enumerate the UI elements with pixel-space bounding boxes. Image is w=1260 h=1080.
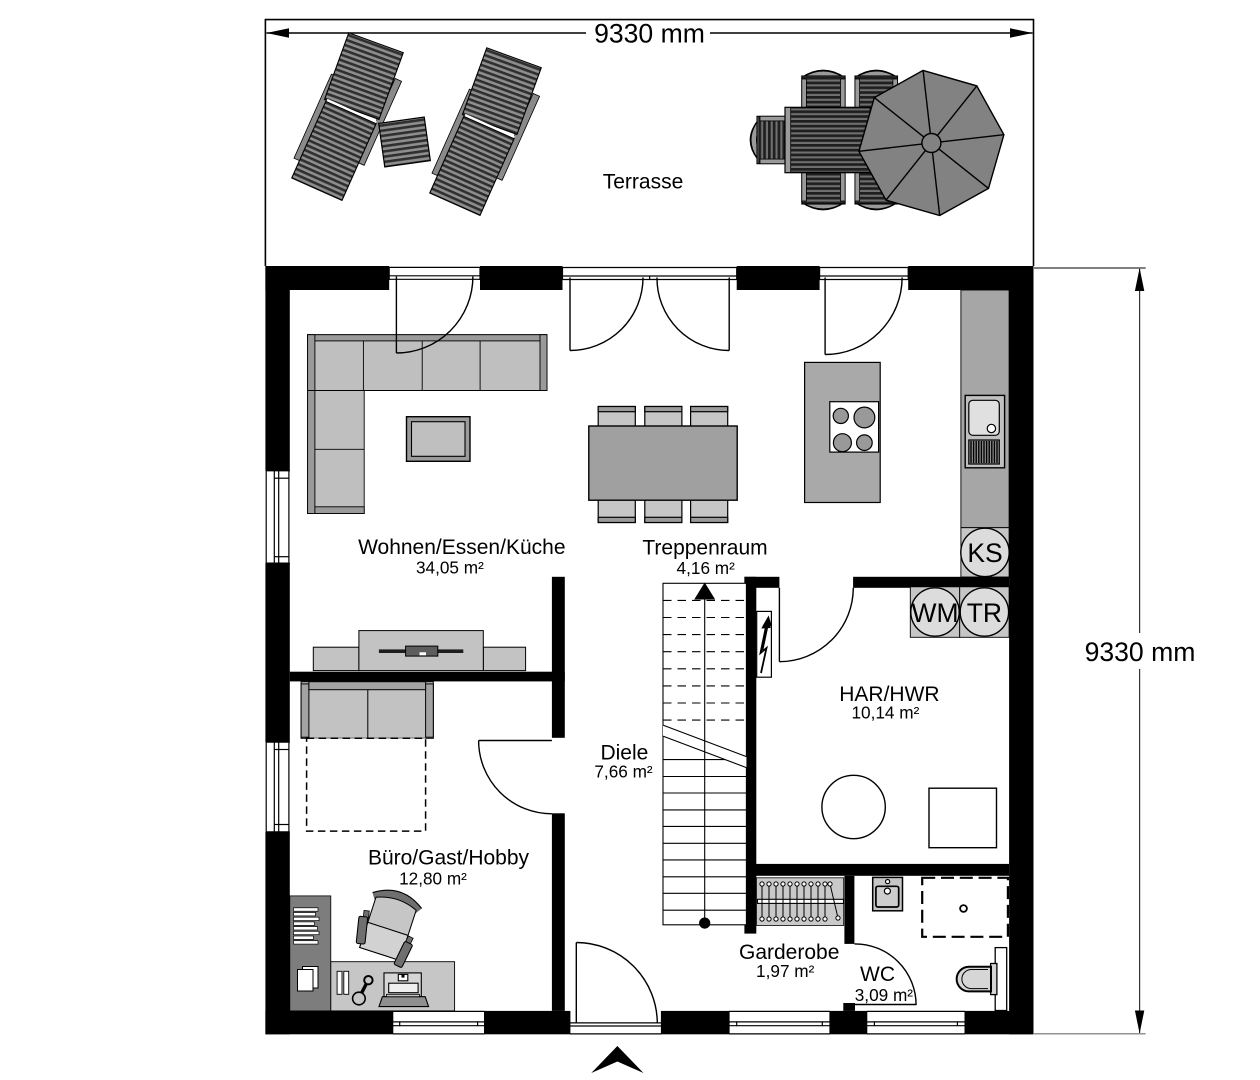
svg-text:1,97 m²: 1,97 m² (756, 961, 815, 981)
svg-text:34,05 m²: 34,05 m² (416, 558, 484, 578)
svg-text:WM: WM (911, 598, 958, 628)
svg-text:4,16 m²: 4,16 m² (677, 558, 736, 578)
svg-text:10,14 m²: 10,14 m² (851, 703, 919, 723)
svg-text:Wohnen/Essen/Küche: Wohnen/Essen/Küche (358, 536, 565, 559)
svg-text:9330 mm: 9330 mm (1085, 637, 1196, 667)
svg-text:Büro/Gast/Hobby: Büro/Gast/Hobby (368, 846, 530, 869)
svg-text:WC: WC (860, 963, 895, 986)
svg-text:3,09 m²: 3,09 m² (855, 985, 914, 1005)
svg-text:TR: TR (967, 598, 1002, 628)
svg-text:7,66 m²: 7,66 m² (594, 761, 653, 781)
svg-text:9330 mm: 9330 mm (594, 18, 705, 48)
svg-text:12,80 m²: 12,80 m² (399, 868, 467, 888)
svg-text:Treppenraum: Treppenraum (642, 536, 767, 559)
svg-text:KS: KS (967, 538, 1002, 568)
svg-text:Terrasse: Terrasse (603, 171, 684, 194)
